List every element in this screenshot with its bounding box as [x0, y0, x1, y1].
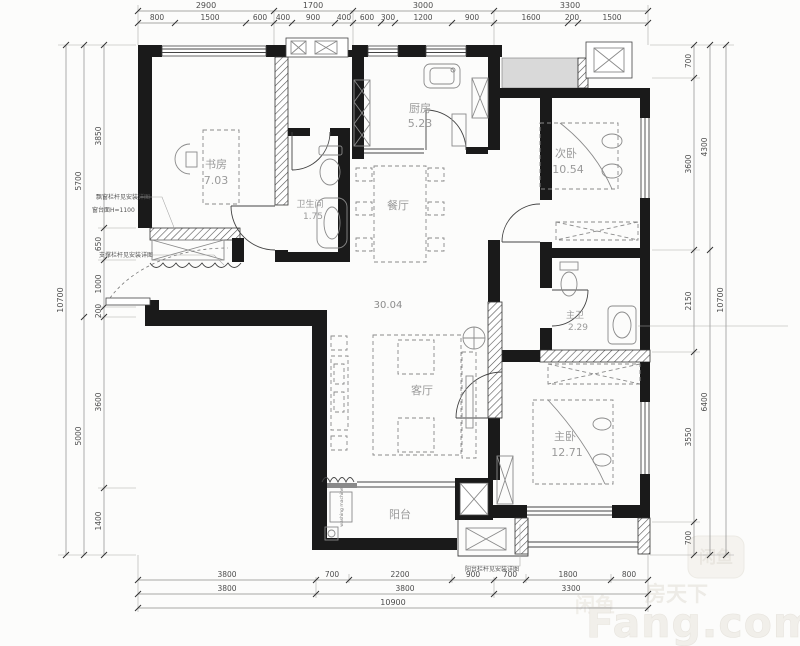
- dim-left-total: 10700: [56, 287, 65, 312]
- dim-left: 3600: [94, 392, 103, 411]
- dim-bottom: 700: [325, 570, 340, 579]
- dim-right-group: 6400: [700, 392, 709, 411]
- dim-left: 650: [94, 237, 103, 252]
- dim-right: 700: [684, 531, 693, 546]
- dim-top: 400: [276, 13, 291, 22]
- dim-right-group: 4300: [700, 137, 709, 156]
- dim-top: 600: [253, 13, 268, 22]
- room-second-bedroom-name: 次卧: [555, 146, 577, 160]
- dimension-labels-right: 700 3600 2150 3550 700 4300 6400 10700: [684, 54, 725, 546]
- room-living-name: 客厅: [411, 383, 433, 397]
- dining-furniture: [356, 166, 444, 262]
- ac-platform: [586, 42, 632, 78]
- dim-top: 900: [465, 13, 480, 22]
- dim-bottom-group: 3800: [395, 584, 414, 593]
- dim-right: 2150: [684, 291, 693, 310]
- room-study-name: 书房: [205, 158, 227, 171]
- dim-left: 200: [94, 304, 103, 319]
- dim-top-group: 3000: [413, 1, 433, 10]
- dim-right: 3600: [684, 154, 693, 173]
- dim-bottom: 800: [622, 570, 637, 579]
- dim-top-group: 2900: [196, 1, 216, 10]
- dim-top: 300: [381, 13, 396, 22]
- dim-top: 200: [565, 13, 580, 22]
- dim-right: 700: [684, 54, 693, 69]
- room-master-bath-name: 主卫: [566, 309, 584, 321]
- dim-bottom: 3800: [217, 570, 236, 579]
- xianyu-logo-text: 闲鱼: [699, 547, 733, 568]
- room-kitchen-area: 5.23: [408, 117, 433, 130]
- dim-bottom-group: 3300: [561, 584, 580, 593]
- floorplan-drawing: 闲鱼 闲鱼 房天下 Fang.com 2900 1700 3000 3300 8…: [0, 0, 800, 646]
- dim-right-total: 10700: [716, 287, 725, 312]
- dim-bottom-group: 3800: [217, 584, 236, 593]
- room-bath-area: 1.75: [303, 212, 323, 222]
- entry-door-leaf: [106, 298, 150, 305]
- dim-top: 900: [306, 13, 321, 22]
- living-dining-total-area: 30.04: [374, 300, 403, 311]
- dim-top: 1500: [200, 13, 219, 22]
- room-second-bedroom-area: 10.54: [552, 163, 584, 176]
- master-bath-fixtures: [560, 262, 788, 344]
- dim-left-group: 5700: [74, 171, 83, 190]
- room-master-bath-area: 2.29: [568, 323, 588, 333]
- room-balcony-name: 阳台: [389, 507, 411, 521]
- dim-top: 600: [360, 13, 375, 22]
- room-master-bedroom-name: 主卧: [554, 430, 576, 443]
- floorplan-canvas: 闲鱼 闲鱼 房天下 Fang.com 2900 1700 3000 3300 8…: [0, 0, 800, 646]
- dim-bottom: 1800: [558, 570, 577, 579]
- dim-top: 1600: [521, 13, 540, 22]
- dim-bottom-total: 10900: [380, 598, 405, 607]
- second-bedroom-furniture: [540, 123, 638, 240]
- room-study-area: 7.03: [204, 174, 229, 187]
- dim-top: 1200: [413, 13, 432, 22]
- dim-top-group: 1700: [303, 1, 323, 10]
- dimension-labels-left: 3850 650 1000 200 3600 1400 5700 5000 10…: [56, 126, 103, 530]
- room-dining-name: 餐厅: [387, 198, 409, 212]
- dim-left-group: 5000: [74, 426, 83, 445]
- washing-machine-label: washing machine: [339, 487, 345, 527]
- entry-cabinet-block: [286, 38, 348, 57]
- living-room-furniture: [331, 327, 485, 458]
- dim-top: 800: [150, 13, 165, 22]
- study-bay-window: [150, 228, 244, 268]
- bay-note-2: 窗台面H=1100: [92, 206, 135, 214]
- watermark-brand-en: Fang.com: [586, 599, 800, 646]
- dim-left: 1400: [94, 511, 103, 530]
- dimension-labels-bottom: 3800 700 2200 900 700 1800 800 3800 3800…: [217, 570, 636, 607]
- dimension-labels-top: 2900 1700 3000 3300 800 1500 600 400 900…: [150, 1, 622, 22]
- room-bath-name: 卫生间: [296, 198, 323, 210]
- room-master-bedroom-area: 12.71: [551, 446, 583, 459]
- dim-left: 1000: [94, 274, 103, 293]
- dim-right: 3550: [684, 427, 693, 446]
- room-kitchen-name: 厨房: [409, 102, 431, 115]
- dim-left: 3850: [94, 126, 103, 145]
- dim-bottom: 2200: [390, 570, 409, 579]
- dim-top-group: 3300: [560, 1, 580, 10]
- watermark: 闲鱼 闲鱼 房天下 Fang.com: [575, 536, 800, 646]
- dim-top: 1500: [602, 13, 621, 22]
- dim-top: 400: [337, 13, 352, 22]
